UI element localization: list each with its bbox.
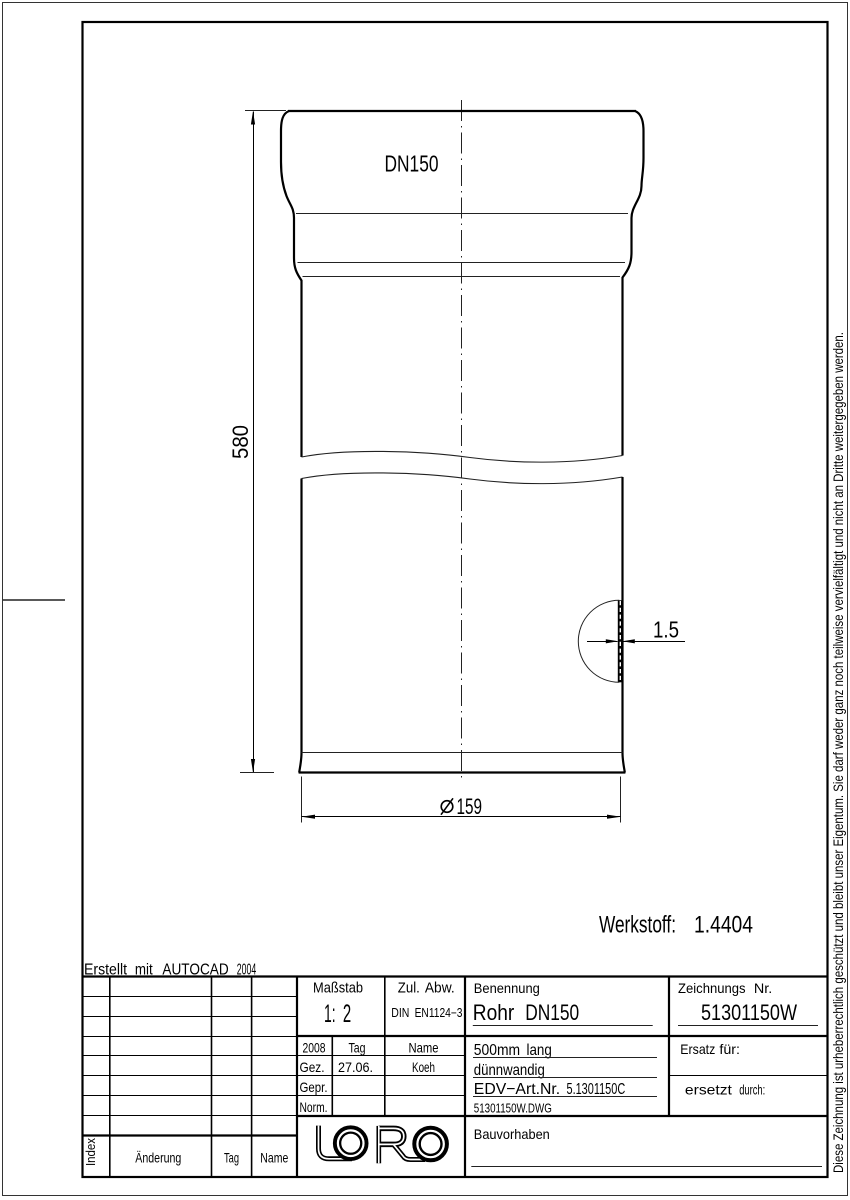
svg-text:Rohr: Rohr xyxy=(473,1000,515,1025)
svg-text:Benennung: Benennung xyxy=(474,980,540,996)
svg-text:durch:: durch: xyxy=(739,1081,765,1097)
svg-text:Name: Name xyxy=(260,1150,288,1166)
svg-text:Abw.: Abw. xyxy=(425,981,455,997)
svg-text:Name: Name xyxy=(409,1039,439,1055)
svg-text:für:: für: xyxy=(719,1041,740,1057)
svg-text:lang: lang xyxy=(527,1042,552,1059)
svg-text:DN150: DN150 xyxy=(525,1000,579,1025)
svg-text:Index: Index xyxy=(83,1138,98,1166)
svg-text:Gepr.: Gepr. xyxy=(300,1079,328,1095)
svg-text:1.4404: 1.4404 xyxy=(694,912,753,939)
svg-text:51301150W.DWG: 51301150W.DWG xyxy=(474,1101,552,1116)
svg-text:Ersatz: Ersatz xyxy=(680,1041,715,1057)
svg-text:EN1124−3: EN1124−3 xyxy=(415,1006,463,1020)
svg-text:Diese Zeichnung ist urheberrec: Diese Zeichnung ist urheberrechtlich ges… xyxy=(830,332,846,1173)
svg-text:2: 2 xyxy=(343,1000,351,1028)
svg-text:Tag: Tag xyxy=(224,1150,239,1166)
svg-text:500mm: 500mm xyxy=(474,1042,520,1059)
svg-text:Norm.: Norm. xyxy=(300,1099,328,1115)
svg-text:1:: 1: xyxy=(324,1000,336,1028)
svg-text:Nr.: Nr. xyxy=(754,980,772,996)
svg-text:Änderung: Änderung xyxy=(135,1150,181,1166)
svg-text:Gez.: Gez. xyxy=(300,1059,325,1075)
svg-text:Werkstoff:: Werkstoff: xyxy=(599,912,676,939)
svg-text:1.5: 1.5 xyxy=(653,617,679,643)
svg-text:dünnwandig: dünnwandig xyxy=(474,1062,545,1079)
svg-text:159: 159 xyxy=(457,794,483,819)
svg-text:Zeichnungs: Zeichnungs xyxy=(678,980,746,996)
svg-text:Zul.: Zul. xyxy=(398,981,420,997)
svg-text:EDV−Art.Nr.: EDV−Art.Nr. xyxy=(474,1081,560,1098)
svg-text:Maßstab: Maßstab xyxy=(313,981,363,997)
svg-text:DN150: DN150 xyxy=(385,151,439,177)
svg-text:Bauvorhaben: Bauvorhaben xyxy=(474,1126,550,1142)
svg-text:2008: 2008 xyxy=(303,1039,326,1055)
svg-text:Tag: Tag xyxy=(349,1039,366,1055)
svg-text:DIN: DIN xyxy=(391,1006,409,1020)
svg-text:ersetzt: ersetzt xyxy=(685,1081,732,1097)
svg-text:580: 580 xyxy=(228,425,253,459)
svg-text:51301150W: 51301150W xyxy=(701,1000,797,1025)
svg-text:27.06.: 27.06. xyxy=(338,1059,373,1075)
svg-text:Koeh: Koeh xyxy=(412,1059,435,1075)
svg-text:5.1301150C: 5.1301150C xyxy=(567,1081,626,1098)
